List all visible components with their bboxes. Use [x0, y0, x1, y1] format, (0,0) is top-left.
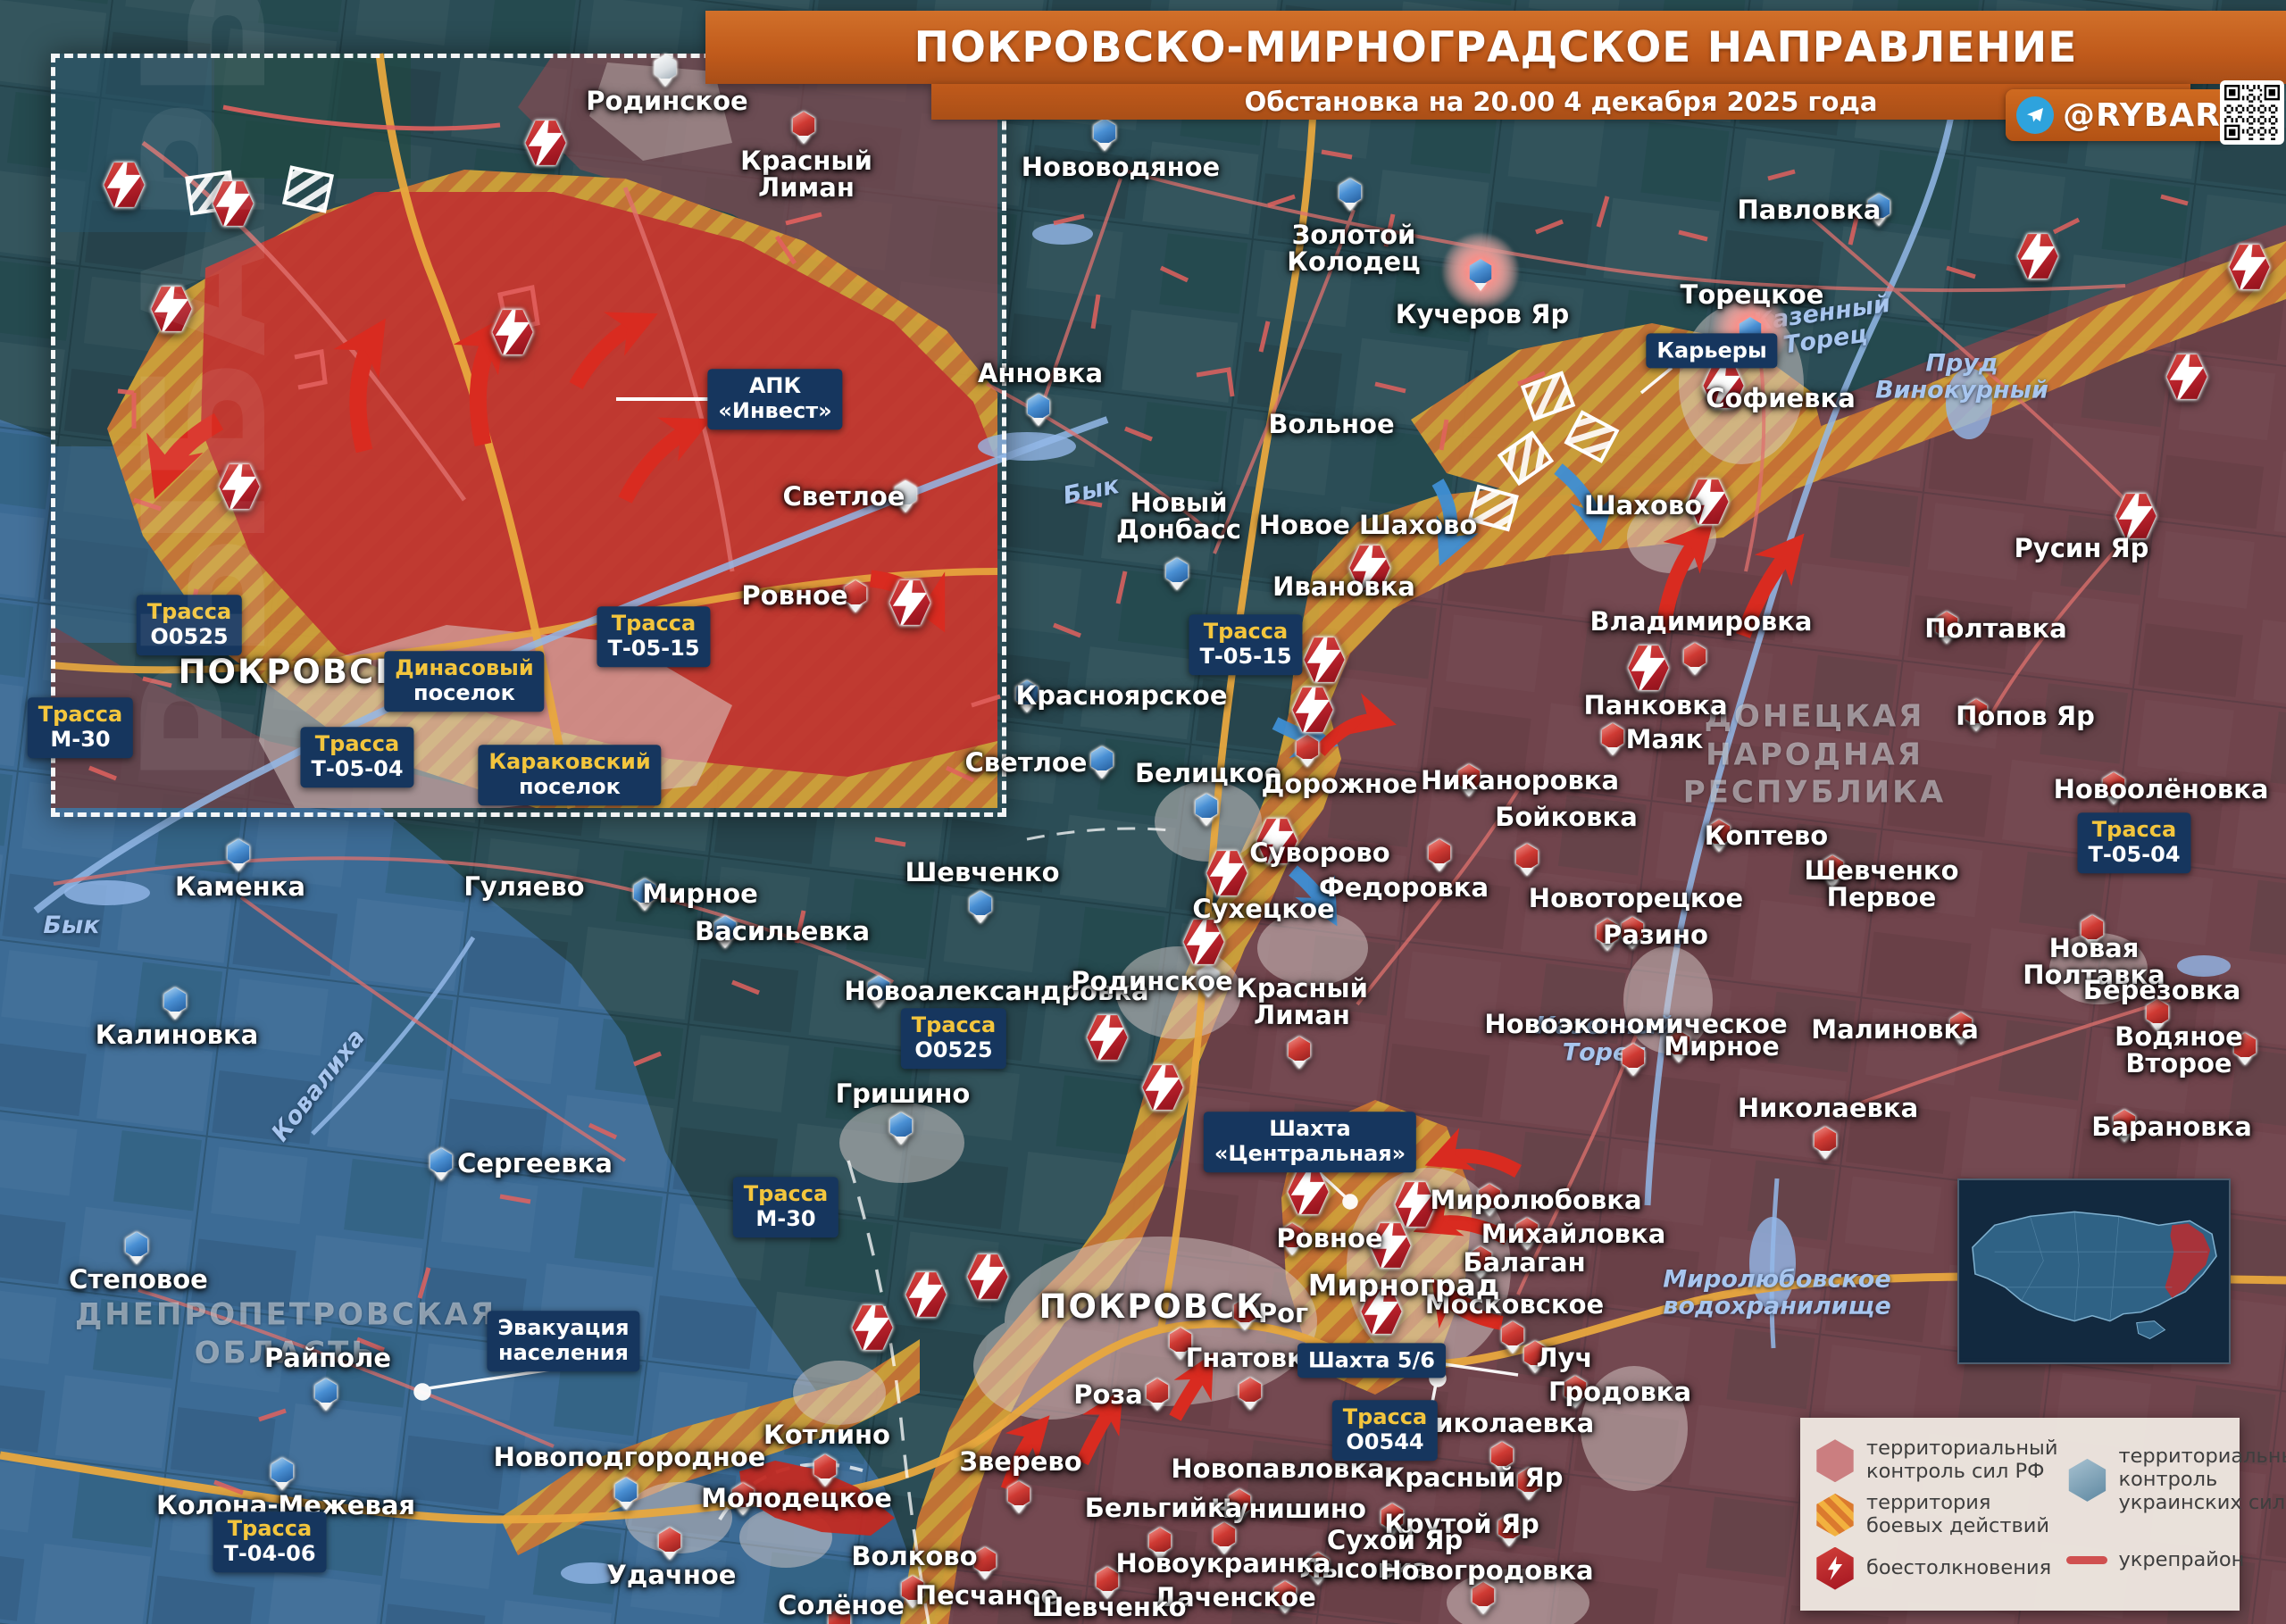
- map-town-label: Водяное Второе: [2115, 1023, 2243, 1077]
- road-label-line1: Трасса: [38, 702, 122, 727]
- map-town-label: Молодецкое: [701, 1485, 892, 1512]
- map-marker-blue: [889, 1112, 913, 1139]
- map-town-label: Золотой Колодец: [1287, 221, 1420, 275]
- map-legend: территориальный контроль сил РФ территор…: [1800, 1418, 2240, 1611]
- map-marker-red: [1146, 1378, 1169, 1405]
- map-marker-blue: [1339, 179, 1362, 205]
- telegram-handle: @RYBAR: [2063, 97, 2221, 134]
- clash-marker: [104, 162, 146, 209]
- inset-marker-red: [792, 112, 815, 138]
- road-label-line2: поселок: [395, 681, 533, 706]
- road-label-line2: «Инвест»: [718, 399, 831, 424]
- legend-item: территория боевых действий: [1815, 1492, 2057, 1538]
- map-town-label: Новоукраинка: [1116, 1550, 1331, 1577]
- road-label-line2: Т-05-15: [1199, 645, 1291, 670]
- map-town-label: Красный Яр: [1384, 1464, 1564, 1491]
- road-label-line2: Т-05-15: [607, 637, 699, 662]
- map-town-label: Новоподгородное: [494, 1444, 766, 1470]
- road-label-line2: М-30: [744, 1207, 828, 1232]
- road-label-line1: Карьеры: [1656, 337, 1766, 362]
- map-marker-red: [1501, 1321, 1524, 1348]
- subtitle-bar: Обстановка на 20.00 4 декабря 2025 года: [931, 84, 2190, 120]
- map-town-label: Светлое: [965, 749, 1088, 776]
- map-town-label: Разино: [1603, 921, 1708, 948]
- map-town-label: Мирное: [642, 880, 758, 907]
- map-marker-red: [813, 1454, 837, 1481]
- telegram-icon: [2016, 96, 2054, 134]
- inset-road-label: Караковскийпоселок: [478, 745, 661, 805]
- map-town-label: Луч: [1537, 1345, 1593, 1371]
- road-label-line1: Трасса: [744, 1181, 828, 1206]
- map-road-label: ТрассаО0525: [901, 1008, 1006, 1069]
- legend-item: территориальный контроль сил РФ: [1815, 1437, 2057, 1484]
- map-town-label: Мирноград: [1308, 1270, 1500, 1301]
- map-marker-red: [1683, 643, 1706, 670]
- map-road-label: ТрассаТ-04-06: [213, 1512, 326, 1572]
- road-label-line1: Эвакуация: [497, 1315, 629, 1340]
- map-town-label: Каменка: [175, 873, 305, 900]
- map-town-label: Березовка: [2083, 977, 2241, 1004]
- clash-marker: [525, 120, 567, 167]
- road-label-line1: Трасса: [1199, 619, 1291, 644]
- map-marker-red: [1239, 1378, 1262, 1404]
- legend-label: территориальный контроль украинских сил: [2118, 1445, 2286, 1515]
- clash-marker: [2229, 244, 2271, 291]
- map-town-label: Шахово: [1584, 492, 1702, 519]
- inset-road-label: АПК«Инвест»: [707, 369, 842, 429]
- road-label-line1: Трасса: [607, 611, 699, 636]
- map-town-label: Зверево: [959, 1448, 1081, 1475]
- map-town-label: Кучеров Яр: [1396, 301, 1569, 328]
- map-town-label: Шевченко: [1031, 1594, 1186, 1620]
- map-town-label: Барановка: [2091, 1113, 2252, 1140]
- map-town-label: Маяк: [1626, 726, 1704, 753]
- map-town-label: Сухецкое: [1192, 895, 1334, 922]
- legend-label: укрепрайон: [2118, 1549, 2244, 1572]
- map-marker-blue: [969, 891, 992, 918]
- clash-marker: [213, 180, 254, 228]
- map-town-label: Русин Яр: [2015, 535, 2149, 562]
- clash-marker: [1292, 687, 1334, 734]
- map-marker-red: [1515, 844, 1539, 870]
- clash-marker: [967, 1253, 1009, 1301]
- map-town-label: Красный Лиман: [1236, 975, 1368, 1029]
- road-label-line2: М-30: [38, 728, 122, 753]
- map-town-label: Новый Донбасс: [1116, 489, 1241, 543]
- road-label-line2: О0525: [147, 625, 231, 650]
- inset-road-label: ТрассаМ-30: [28, 697, 133, 758]
- map-road-label: Шахта«Центральная»: [1204, 1112, 1416, 1172]
- map-marker-blue: [163, 987, 187, 1014]
- map-marker-red: [1601, 723, 1624, 750]
- road-label-line1: Караковский: [488, 749, 650, 774]
- map-town-label: Торецкое: [1681, 281, 1824, 308]
- road-label-line2: Т-05-04: [311, 757, 403, 782]
- road-label-line1: Трасса: [1343, 1404, 1427, 1429]
- water-label: Бык: [43, 912, 99, 939]
- inset-road-label: ТрассаТ-05-04: [300, 727, 413, 787]
- telegram-badge[interactable]: @RYBAR: [2006, 89, 2234, 141]
- road-label-line1: Трасса: [2088, 817, 2180, 842]
- map-town-label: Удачное: [607, 1562, 737, 1588]
- map-subtitle: Обстановка на 20.00 4 декабря 2025 года: [1245, 87, 1878, 117]
- inset-town-label: Ровное: [741, 582, 847, 609]
- map-marker-red: [1288, 1037, 1311, 1063]
- road-label-line1: Трасса: [223, 1516, 315, 1541]
- map-town-label: Степовое: [69, 1266, 208, 1293]
- road-label-line2: поселок: [488, 775, 650, 800]
- clash-marker: [1304, 637, 1346, 684]
- map-title: ПОКРОВСКО-МИРНОГРАДСКОЕ НАПРАВЛЕНИЕ: [914, 23, 2078, 72]
- inset-town-label: Красный Лиман: [740, 147, 872, 201]
- map-marker-blue: [1027, 394, 1050, 421]
- map-road-label: ТрассаО0544: [1332, 1400, 1438, 1461]
- road-label-line2: населения: [497, 1341, 629, 1366]
- map-town-label: Бельгийка: [1085, 1495, 1242, 1521]
- map-road-label: Эвакуациянаселения: [487, 1311, 639, 1371]
- map-marker-red: [658, 1528, 681, 1554]
- clash-marker: [1206, 850, 1248, 897]
- map-town-label: Мирное: [1664, 1033, 1780, 1060]
- map-marker-red: [1428, 839, 1451, 866]
- map-town-label: Котлино: [763, 1421, 890, 1448]
- map-town-label: Калиновка: [96, 1021, 258, 1048]
- inset-town-label: Светлое: [783, 483, 905, 510]
- road-label-line1: Трасса: [311, 731, 403, 756]
- combat-hex-icon: [1815, 1493, 1856, 1537]
- inset-marker-white: [654, 54, 677, 81]
- clash-marker: [1142, 1064, 1184, 1112]
- map-town-label: Гродовка: [1548, 1378, 1691, 1405]
- inset-road-label: ТрассаТ-05-15: [597, 606, 710, 667]
- inset-road-label: ТрассаО0525: [137, 595, 242, 655]
- map-town-label: Новое Шахово: [1259, 512, 1478, 538]
- road-label-line1: Трасса: [147, 599, 231, 624]
- map-town-label: Сухой Яр: [1327, 1527, 1463, 1553]
- road-label-line2: О0525: [912, 1038, 996, 1063]
- map-town-label: Попов Яр: [1956, 703, 2095, 729]
- map-town-label: Никаноровка: [1421, 767, 1619, 794]
- map-town-label: ПОКРОВСК: [1039, 1290, 1265, 1324]
- map-town-label: Волково: [851, 1543, 977, 1570]
- map-town-label: Суворово: [1249, 839, 1389, 866]
- map-marker-blue: [614, 1478, 638, 1504]
- map-town-label: Новоторецкое: [1529, 885, 1743, 912]
- inset-town-label: ПОКРОВСК: [179, 655, 405, 689]
- map-town-label: Николаевка: [1414, 1410, 1594, 1437]
- map-marker-blue: [1093, 119, 1116, 146]
- map-marker-blue: [1195, 794, 1218, 820]
- map-road-label: Карьеры: [1646, 333, 1777, 368]
- map-marker-red: [1007, 1481, 1030, 1508]
- map-town-label: Дорожное: [1262, 770, 1418, 797]
- map-town-label: Красноярское: [1015, 682, 1227, 709]
- legend-item: территориальный контроль украинских сил: [2066, 1445, 2286, 1515]
- clash-marker: [1288, 1169, 1330, 1216]
- map-marker-blue: [1165, 558, 1189, 585]
- map-town-label: Солёное: [778, 1592, 905, 1619]
- road-label-line1: Динасовый: [395, 655, 533, 680]
- clash-marker: [889, 579, 931, 627]
- map-town-label: Софиевка: [1706, 385, 1856, 412]
- map-marker-blue: [1469, 259, 1492, 286]
- map-marker-blue: [125, 1232, 148, 1259]
- road-label-line1: Трасса: [912, 1012, 996, 1037]
- legend-item: боестолкновения: [1815, 1546, 2057, 1591]
- map-town-label: Ровное: [1276, 1225, 1382, 1252]
- clash-hex-icon: [1815, 1546, 1856, 1591]
- map-marker-red: [1472, 1582, 1495, 1609]
- map-marker-red: [1814, 1127, 1837, 1153]
- qr-code[interactable]: [2220, 80, 2284, 145]
- map-town-label: Бойковка: [1495, 804, 1638, 830]
- road-label-line1: Шахта: [1214, 1116, 1406, 1141]
- legend-item: укрепрайон: [2066, 1538, 2286, 1583]
- map-road-label: ТрассаМ-30: [733, 1177, 838, 1237]
- clash-marker: [1628, 645, 1670, 692]
- map-road-label: ТрассаТ-05-15: [1189, 614, 1302, 675]
- map-road-label: ТрассаТ-05-04: [2077, 812, 2190, 873]
- map-town-label: Владимировка: [1590, 608, 1813, 635]
- map-marker-blue: [430, 1148, 453, 1175]
- map-town-label: Шевченко: [905, 859, 1059, 886]
- map-town-label: Белицкое: [1135, 760, 1281, 787]
- war-map: РЫБАРЬ ПОКРОВСКО-МИРНОГРАДСКОЕ НАПРАВЛЕН…: [0, 0, 2286, 1624]
- map-town-label: Николаевка: [1738, 1095, 1918, 1121]
- map-town-label: Вольное: [1268, 411, 1394, 437]
- map-town-label: Гришино: [836, 1080, 971, 1107]
- map-town-label: Ивановка: [1272, 573, 1415, 600]
- clash-marker: [1183, 919, 1225, 966]
- title-banner: ПОКРОВСКО-МИРНОГРАДСКОЕ НАПРАВЛЕНИЕ: [705, 11, 2286, 84]
- map-town-label: Михайловка: [1481, 1220, 1666, 1247]
- road-label-line2: Т-04-06: [223, 1542, 315, 1567]
- clash-marker: [492, 309, 534, 356]
- road-label-line1: Шахта 5/6: [1308, 1347, 1435, 1372]
- map-road-label: Шахта 5/6: [1297, 1343, 1446, 1378]
- map-marker-blue: [227, 839, 250, 866]
- legend-label: боестолкновения: [1866, 1557, 2051, 1580]
- road-label-line1: АПК: [718, 373, 831, 398]
- map-marker-red: [1296, 735, 1319, 762]
- clash-marker: [905, 1271, 947, 1319]
- legend-label: территориальный контроль сил РФ: [1866, 1437, 2057, 1484]
- rf-hex-icon: [1815, 1438, 1856, 1483]
- map-town-label: Полтавка: [1924, 615, 2066, 642]
- map-town-label: Федоровка: [1319, 874, 1489, 901]
- clash-marker: [151, 286, 193, 333]
- fort-line-icon: [2066, 1538, 2107, 1583]
- water-label: Миролюбовское водохранилище: [1663, 1266, 1890, 1319]
- inset-road-label: Динасовыйпоселок: [384, 651, 544, 712]
- road-label-line2: Т-05-04: [2088, 843, 2180, 868]
- inset-town-label: Родинское: [586, 87, 747, 114]
- map-town-label: Павловка: [1738, 196, 1881, 223]
- clash-marker: [2017, 233, 2059, 280]
- map-town-label: Миролюбовка: [1430, 1187, 1641, 1213]
- map-town-label: Нововодяное: [1022, 154, 1220, 180]
- map-marker-blue: [271, 1458, 294, 1485]
- map-town-label: Новоолёновка: [2054, 776, 2269, 803]
- map-marker-red: [1622, 1044, 1645, 1070]
- map-town-label: Малиновка: [1811, 1016, 1979, 1043]
- legend-label: территория боевых действий: [1866, 1492, 2057, 1538]
- map-town-label: Васильевка: [695, 918, 870, 945]
- map-town-label: Роза: [1073, 1381, 1143, 1408]
- clash-marker: [219, 463, 261, 511]
- water-label: Пруд Винокурный: [1875, 350, 2048, 403]
- map-town-label: Рог: [1258, 1300, 1308, 1327]
- map-marker-blue: [314, 1378, 338, 1405]
- map-town-label: Новогродовка: [1380, 1557, 1593, 1584]
- map-town-label: Шевченко Первое: [1804, 857, 1958, 911]
- map-town-label: Райполе: [264, 1345, 391, 1371]
- road-label-line2: О0544: [1343, 1430, 1427, 1455]
- map-town-label: Гуляево: [463, 873, 584, 900]
- map-town-label: Коптево: [1705, 822, 1828, 849]
- map-marker-blue: [1090, 746, 1114, 773]
- map-town-label: Родинское: [1071, 968, 1232, 995]
- road-label-line2: «Центральная»: [1214, 1142, 1406, 1167]
- map-town-label: Панковка: [1583, 692, 1727, 719]
- map-town-label: Анновка: [978, 360, 1103, 387]
- map-town-label: Сергеевка: [457, 1150, 613, 1177]
- clash-marker: [1087, 1014, 1129, 1062]
- ukraine-minimap: [1957, 1178, 2231, 1364]
- clash-marker: [852, 1304, 894, 1352]
- ua-hex-icon: [2066, 1458, 2107, 1503]
- clash-marker: [2166, 354, 2208, 401]
